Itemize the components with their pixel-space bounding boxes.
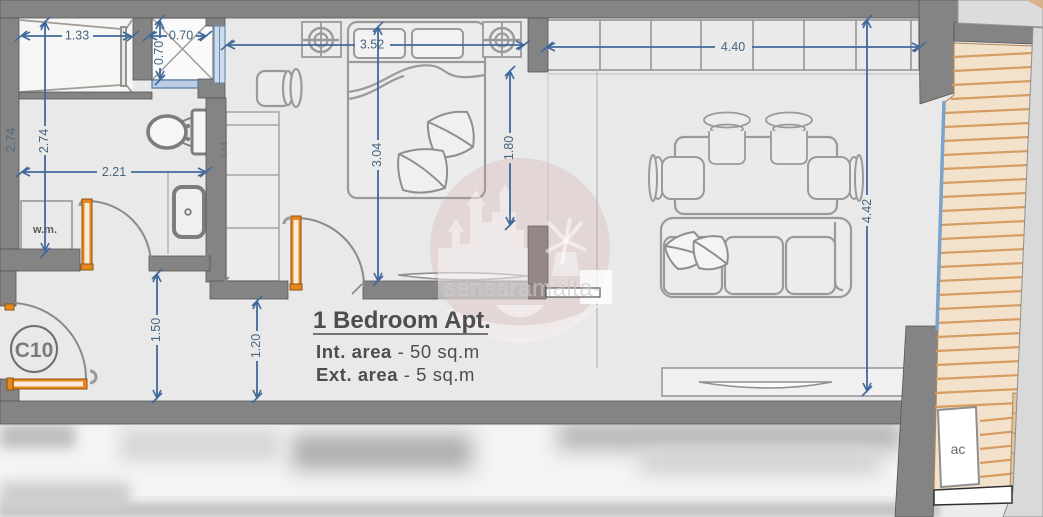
svg-text:1.80: 1.80	[502, 136, 516, 160]
svg-text:sensaramalta-: sensaramalta-	[444, 275, 601, 302]
svg-text:1 Bedroom Apt.: 1 Bedroom Apt.	[313, 307, 491, 334]
svg-text:4.40: 4.40	[721, 40, 745, 54]
svg-text:ac: ac	[951, 441, 966, 457]
svg-text:3.52: 3.52	[360, 38, 384, 52]
svg-text:2.74: 2.74	[4, 128, 18, 152]
svg-text:3.04: 3.04	[370, 143, 384, 167]
svg-text:1.33: 1.33	[65, 29, 89, 43]
svg-text:Ext. area - 5 sq.m: Ext. area - 5 sq.m	[316, 364, 475, 385]
svg-text:1.50: 1.50	[149, 318, 163, 342]
svg-text:C10: C10	[15, 339, 54, 362]
svg-text:2.21: 2.21	[102, 165, 126, 179]
svg-text:4.42: 4.42	[860, 199, 874, 223]
svg-text:0.64: 0.64	[220, 142, 229, 158]
svg-text:0.70: 0.70	[169, 29, 193, 43]
svg-text:2.74: 2.74	[37, 129, 51, 153]
svg-text:0.70: 0.70	[152, 41, 166, 65]
svg-text:Int. area - 50 sq.m: Int. area - 50 sq.m	[316, 341, 480, 362]
svg-text:1.20: 1.20	[249, 334, 263, 358]
